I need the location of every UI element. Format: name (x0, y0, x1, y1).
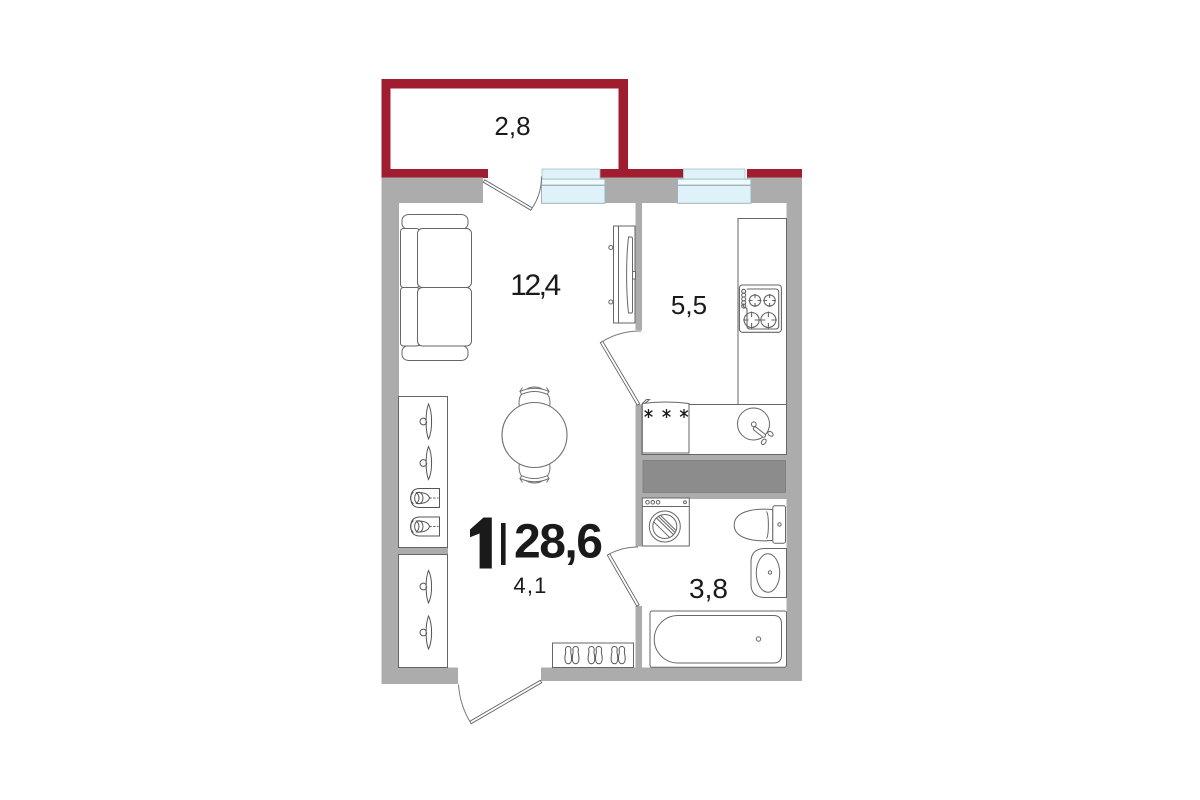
svg-text:2,8: 2,8 (494, 111, 530, 141)
svg-text:12,4: 12,4 (510, 269, 560, 302)
svg-text:5,5: 5,5 (671, 290, 707, 320)
svg-text:28,6: 28,6 (514, 516, 601, 569)
svg-text:3,8: 3,8 (689, 573, 728, 604)
svg-text:4,1: 4,1 (513, 573, 547, 598)
